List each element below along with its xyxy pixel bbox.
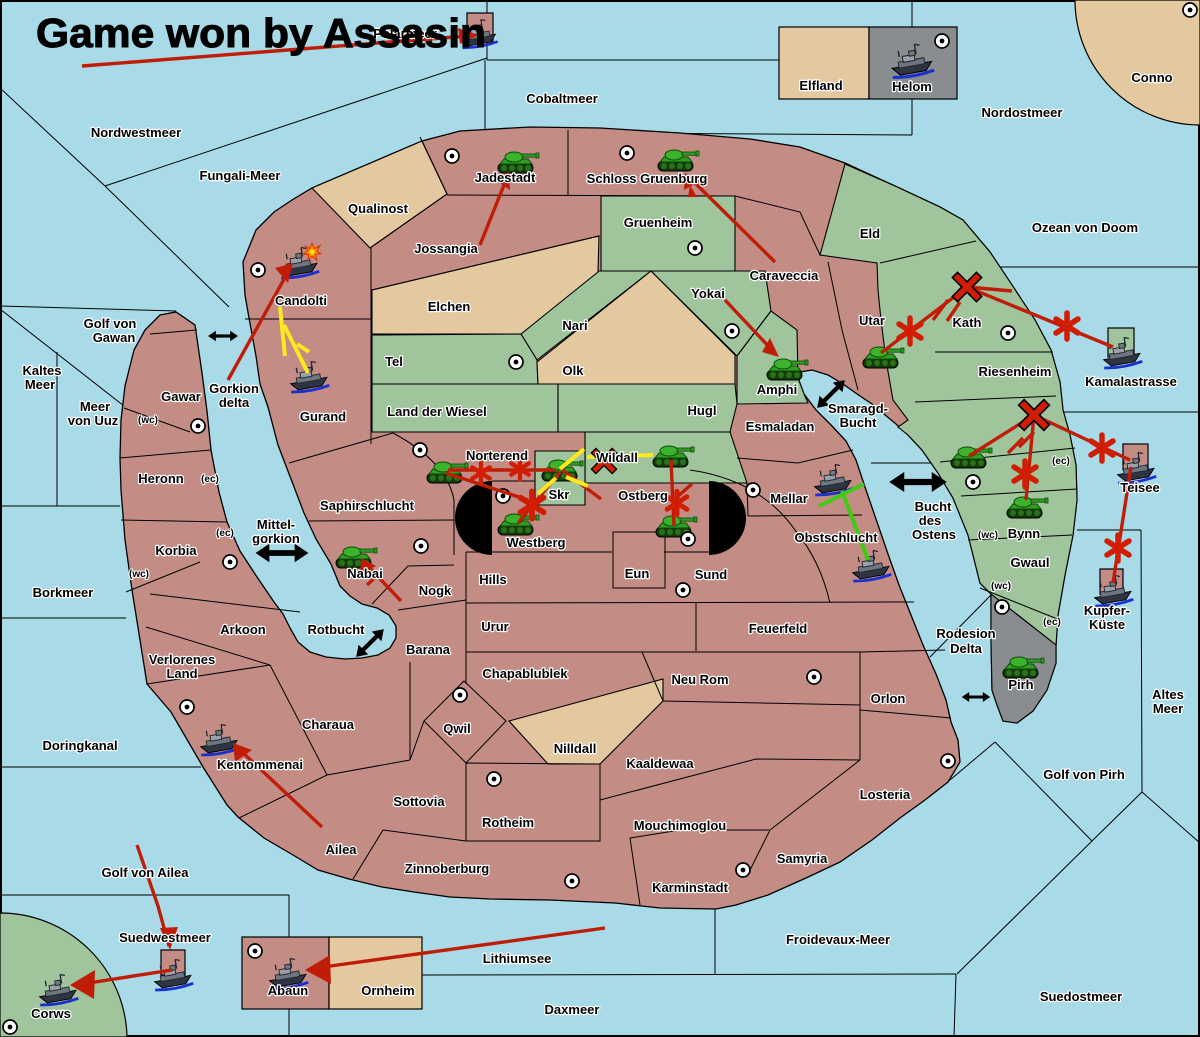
svg-text:Meer: Meer (1153, 701, 1183, 716)
svg-text:Kupfer-: Kupfer- (1084, 603, 1130, 618)
svg-text:Borkmeer: Borkmeer (33, 585, 94, 600)
svg-text:Gwaul: Gwaul (1010, 555, 1049, 570)
svg-text:Rotheim: Rotheim (482, 815, 534, 830)
svg-text:Yokai: Yokai (691, 286, 725, 301)
svg-text:Fungali-Meer: Fungali-Meer (200, 168, 281, 183)
svg-text:Ozean von Doom: Ozean von Doom (1032, 220, 1138, 235)
svg-text:Gruenheim: Gruenheim (624, 215, 693, 230)
svg-text:Gawan: Gawan (93, 330, 136, 345)
svg-text:Abaun: Abaun (268, 983, 309, 998)
svg-text:Nilldall: Nilldall (554, 741, 597, 756)
svg-text:Golf von: Golf von (84, 316, 137, 331)
svg-text:Olk: Olk (563, 363, 585, 378)
svg-text:Doringkanal: Doringkanal (42, 738, 117, 753)
svg-text:gorkion: gorkion (252, 531, 300, 546)
svg-text:(ec): (ec) (1052, 456, 1070, 467)
svg-text:Bynn: Bynn (1008, 526, 1041, 541)
svg-text:Mittel-: Mittel- (257, 517, 295, 532)
svg-text:Elchen: Elchen (428, 299, 471, 314)
svg-text:Eun: Eun (625, 566, 650, 581)
svg-text:Helom: Helom (892, 79, 932, 94)
svg-text:Golf von Ailea: Golf von Ailea (102, 865, 190, 880)
svg-text:Eld: Eld (860, 226, 880, 241)
svg-text:Meer: Meer (80, 399, 110, 414)
svg-text:Caraveccia: Caraveccia (750, 268, 819, 283)
svg-text:Nordostmeer: Nordostmeer (982, 105, 1063, 120)
svg-text:Candolti: Candolti (275, 293, 327, 308)
svg-text:Kaaldewaa: Kaaldewaa (626, 756, 694, 771)
svg-text:Gawar: Gawar (161, 389, 201, 404)
svg-text:Bucht: Bucht (840, 415, 878, 430)
svg-text:Nogk: Nogk (419, 583, 452, 598)
svg-text:Hugl: Hugl (688, 403, 717, 418)
svg-text:(ec): (ec) (216, 528, 234, 539)
svg-text:Gorkion: Gorkion (209, 381, 259, 396)
svg-text:Amphi: Amphi (757, 382, 797, 397)
svg-text:Elfland: Elfland (799, 78, 842, 93)
svg-text:Neu Rom: Neu Rom (671, 672, 728, 687)
svg-text:Obstschlucht: Obstschlucht (794, 530, 878, 545)
svg-text:Ailea: Ailea (325, 842, 357, 857)
svg-text:Mellar: Mellar (770, 491, 808, 506)
svg-text:Karminstadt: Karminstadt (652, 880, 729, 895)
svg-text:Saphirschlucht: Saphirschlucht (320, 498, 415, 513)
svg-text:Arkoon: Arkoon (220, 622, 266, 637)
svg-text:Charaua: Charaua (302, 717, 355, 732)
svg-text:Game won by Assasin: Game won by Assasin (36, 10, 486, 56)
svg-text:Land: Land (166, 666, 197, 681)
svg-text:Lithiumsee: Lithiumsee (483, 951, 552, 966)
svg-text:Hills: Hills (479, 572, 506, 587)
svg-text:Verlorenes: Verlorenes (149, 652, 216, 667)
svg-text:Nabai: Nabai (347, 566, 382, 581)
svg-text:Orlon: Orlon (871, 691, 906, 706)
svg-text:Nari: Nari (562, 318, 587, 333)
svg-text:Pirh: Pirh (1008, 677, 1033, 692)
svg-text:Nordwestmeer: Nordwestmeer (91, 125, 181, 140)
svg-text:Smaragd-: Smaragd- (828, 401, 888, 416)
svg-text:Schloss Gruenburg: Schloss Gruenburg (587, 171, 708, 186)
svg-text:Esmaladan: Esmaladan (746, 419, 815, 434)
svg-text:Bucht: Bucht (915, 499, 953, 514)
svg-text:Froidevaux-Meer: Froidevaux-Meer (786, 932, 890, 947)
svg-text:Qwil: Qwil (443, 721, 470, 736)
svg-text:Jadestadt: Jadestadt (475, 170, 536, 185)
svg-text:Zinnoberburg: Zinnoberburg (405, 861, 490, 876)
svg-text:Jossangia: Jossangia (414, 241, 478, 256)
svg-text:Rodesion: Rodesion (936, 626, 995, 641)
svg-text:(ec): (ec) (1043, 617, 1061, 628)
svg-text:Urur: Urur (481, 619, 508, 634)
svg-text:Mouchimoglou: Mouchimoglou (634, 818, 726, 833)
svg-text:des: des (919, 513, 941, 528)
svg-text:Heronn: Heronn (138, 471, 184, 486)
svg-text:Ornheim: Ornheim (361, 983, 414, 998)
svg-text:Land der Wiesel: Land der Wiesel (387, 404, 487, 419)
svg-text:Riesenheim: Riesenheim (979, 364, 1052, 379)
svg-text:Meer: Meer (25, 377, 55, 392)
svg-text:(ec): (ec) (201, 474, 219, 485)
svg-text:Suedwestmeer: Suedwestmeer (119, 930, 211, 945)
svg-text:Sund: Sund (695, 567, 728, 582)
svg-text:Daxmeer: Daxmeer (545, 1002, 600, 1017)
svg-text:Westberg: Westberg (507, 535, 566, 550)
svg-text:Küste: Küste (1089, 617, 1125, 632)
svg-text:Conno: Conno (1131, 70, 1172, 85)
svg-text:Wildall: Wildall (596, 450, 638, 465)
svg-text:Golf von Pirh: Golf von Pirh (1043, 767, 1125, 782)
svg-text:Cobaltmeer: Cobaltmeer (526, 91, 598, 106)
svg-text:(wc): (wc) (129, 569, 149, 580)
svg-text:Delta: Delta (950, 641, 983, 656)
svg-text:Sottovia: Sottovia (393, 794, 445, 809)
svg-text:Kentommenai: Kentommenai (217, 757, 303, 772)
svg-text:Ostberg: Ostberg (618, 488, 668, 503)
svg-text:Gurand: Gurand (300, 409, 346, 424)
svg-text:Altes: Altes (1152, 687, 1184, 702)
svg-text:Utar: Utar (859, 313, 885, 328)
svg-text:Rotbucht: Rotbucht (307, 622, 365, 637)
svg-text:Suedostmeer: Suedostmeer (1040, 989, 1122, 1004)
svg-text:Korbia: Korbia (155, 543, 197, 558)
svg-text:(wc): (wc) (138, 415, 158, 426)
svg-text:Kaltes: Kaltes (22, 363, 61, 378)
svg-text:(wc): (wc) (978, 530, 998, 541)
svg-text:delta: delta (219, 395, 250, 410)
svg-text:Teisee: Teisee (1120, 480, 1160, 495)
svg-text:von Uuz: von Uuz (68, 413, 119, 428)
svg-text:Kamalastrasse: Kamalastrasse (1085, 374, 1177, 389)
svg-text:Feuerfeld: Feuerfeld (749, 621, 808, 636)
svg-text:Corws: Corws (31, 1006, 71, 1021)
svg-text:Barana: Barana (406, 642, 451, 657)
svg-text:Chapablublek: Chapablublek (482, 666, 568, 681)
svg-text:Norterend: Norterend (466, 448, 528, 463)
svg-text:Skr: Skr (549, 487, 570, 502)
svg-text:(wc): (wc) (991, 581, 1011, 592)
svg-text:Tel: Tel (385, 354, 403, 369)
svg-text:Kath: Kath (953, 315, 982, 330)
svg-text:Losteria: Losteria (860, 787, 911, 802)
svg-text:Samyria: Samyria (777, 851, 828, 866)
svg-text:Ostens: Ostens (912, 527, 956, 542)
svg-text:Qualinost: Qualinost (348, 201, 409, 216)
